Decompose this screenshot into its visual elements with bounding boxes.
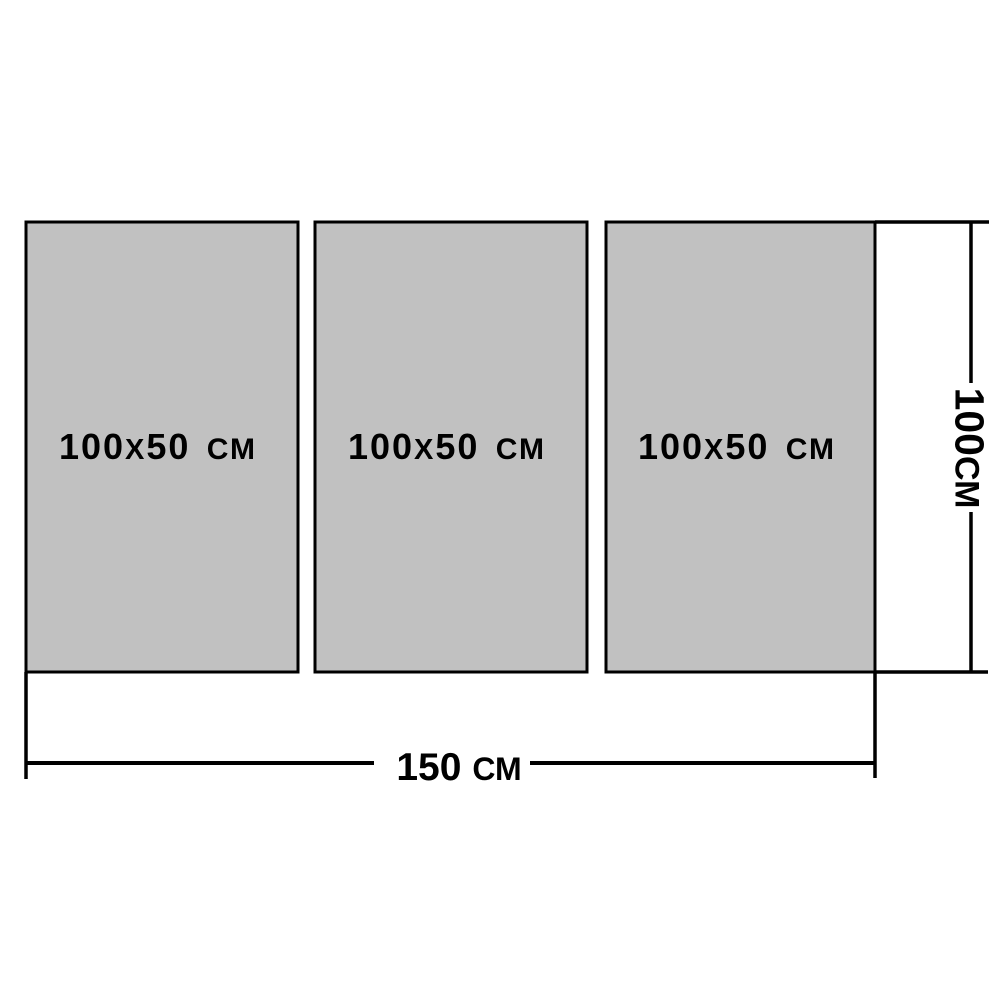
- svg-text:100СМ: 100СМ: [947, 388, 993, 509]
- svg-text:150 СМ: 150 СМ: [396, 746, 521, 789]
- svg-text:100X50 СМ: 100X50 СМ: [348, 426, 546, 467]
- svg-text:100X50 СМ: 100X50 СМ: [638, 426, 836, 467]
- svg-text:100X50 СМ: 100X50 СМ: [59, 426, 257, 467]
